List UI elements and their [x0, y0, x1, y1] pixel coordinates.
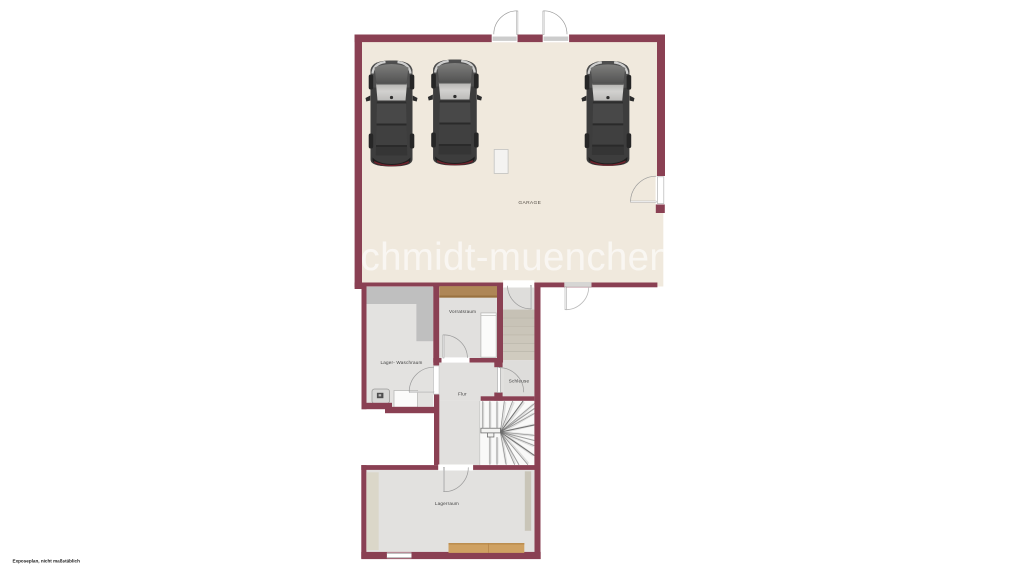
svg-text:Exposeplan, nicht maßstäblich: Exposeplan, nicht maßstäblich [13, 558, 81, 563]
svg-text:Flur: Flur [458, 391, 467, 396]
svg-text:Schleuse: Schleuse [509, 379, 530, 384]
svg-text:Lagerraum: Lagerraum [435, 501, 459, 506]
svg-text:schmidt-muenchen: schmidt-muenchen [341, 236, 671, 279]
svg-text:Lager- Waschraum: Lager- Waschraum [380, 360, 422, 365]
svg-text:GARAGE: GARAGE [518, 200, 541, 206]
svg-text:Vorratsraum: Vorratsraum [449, 309, 476, 314]
